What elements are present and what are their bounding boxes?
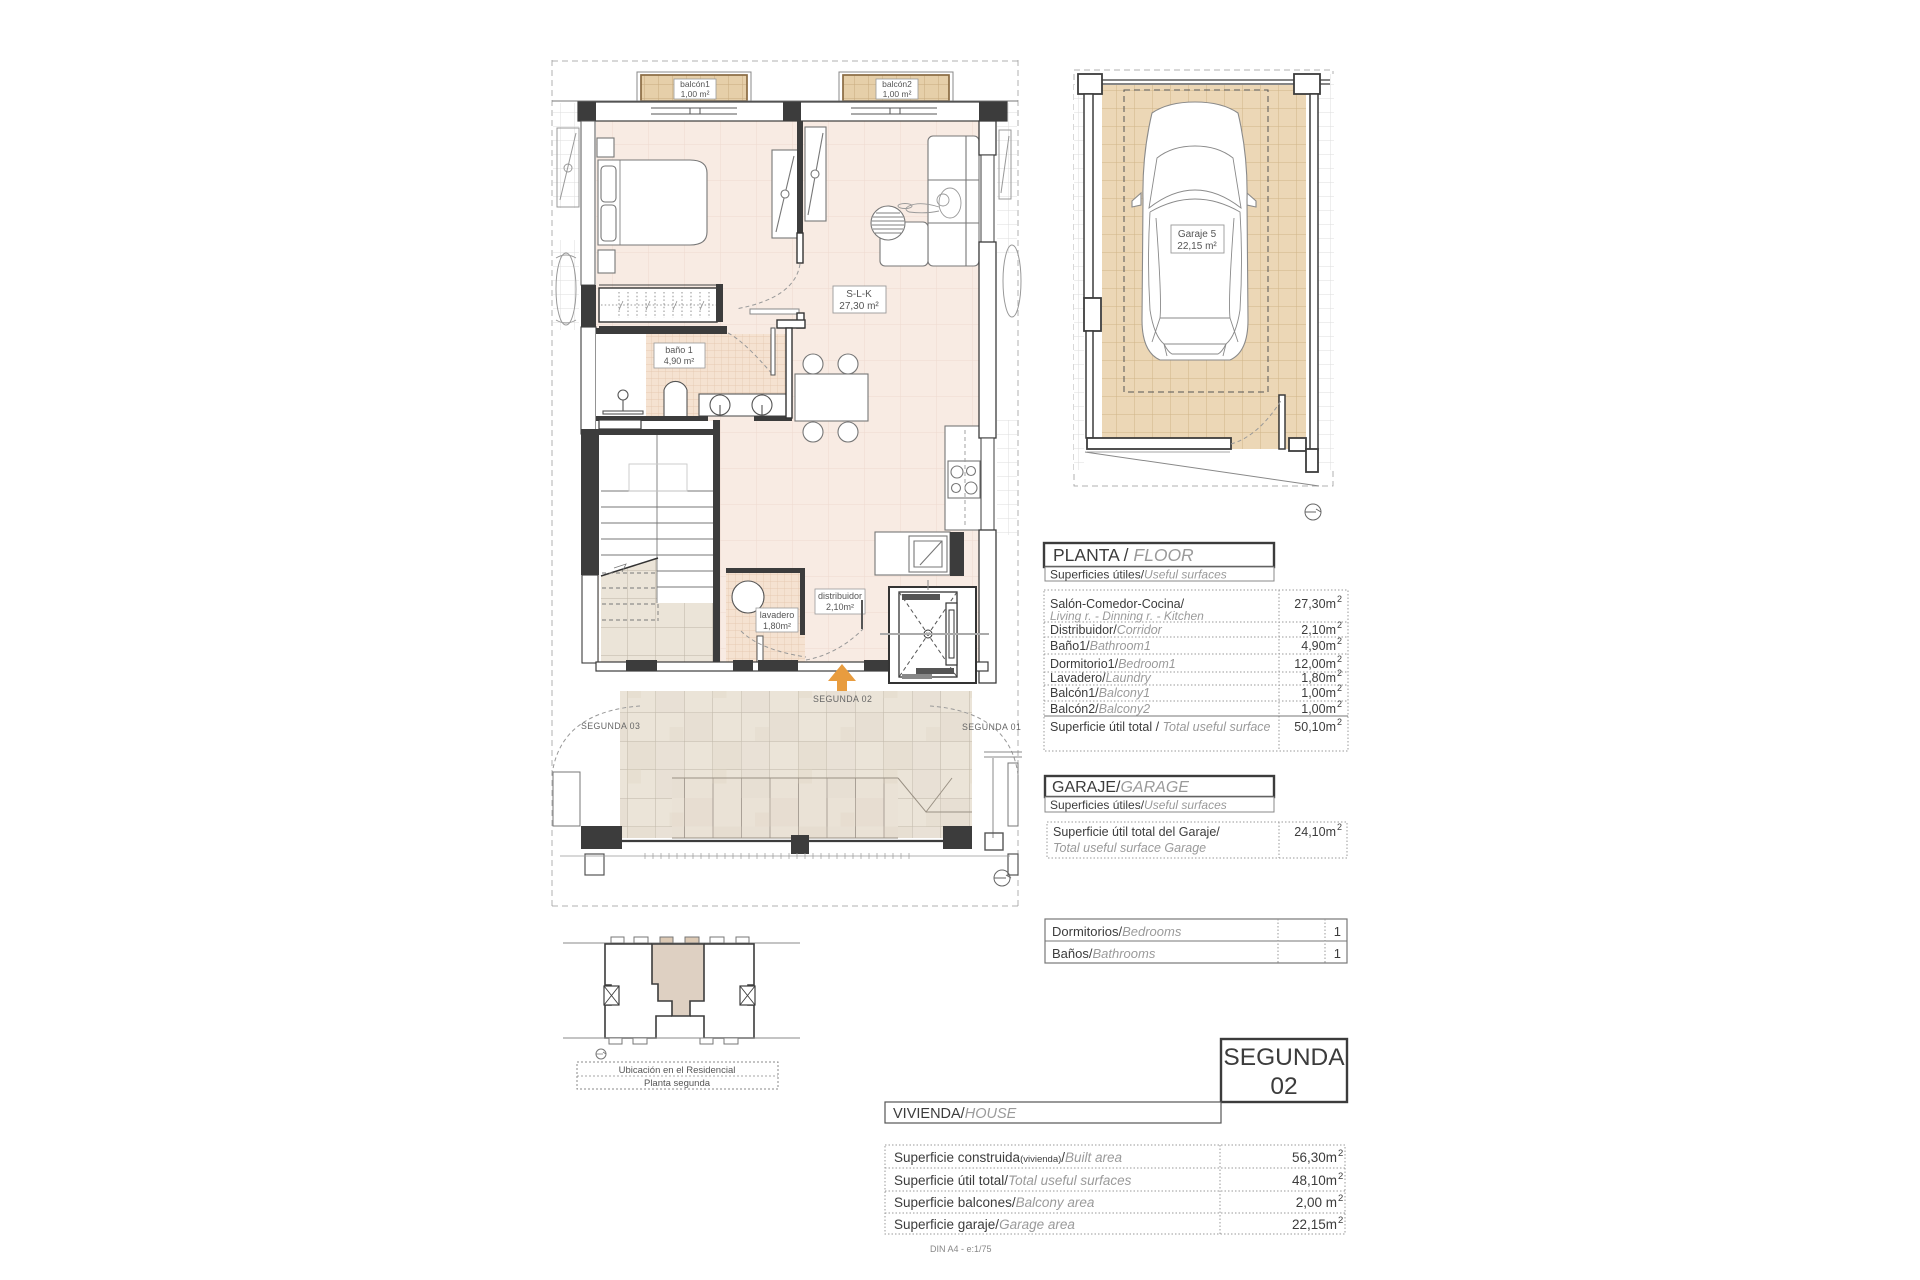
svg-text:1,00 m²: 1,00 m² (883, 89, 912, 99)
svg-text:1,80m: 1,80m (1301, 671, 1336, 685)
svg-text:2: 2 (1337, 822, 1342, 832)
svg-text:4,90m: 4,90m (1301, 639, 1336, 653)
svg-text:2: 2 (1337, 717, 1342, 727)
svg-text:2: 2 (1337, 620, 1342, 630)
svg-text:Balcón2/Balcony2: Balcón2/Balcony2 (1050, 702, 1150, 716)
svg-text:2,10m²: 2,10m² (826, 602, 854, 612)
svg-text:2: 2 (1337, 668, 1342, 678)
svg-text:1,80m²: 1,80m² (763, 621, 791, 631)
svg-text:Superficie garaje/Garage area: Superficie garaje/Garage area (894, 1217, 1075, 1232)
svg-text:GARAJE/GARAGE: GARAJE/GARAGE (1052, 779, 1189, 796)
svg-text:24,10m: 24,10m (1294, 825, 1336, 839)
svg-text:Superficie construida(vivienda: Superficie construida(vivienda)/Built ar… (894, 1150, 1123, 1165)
svg-text:SEGUNDA 02: SEGUNDA 02 (813, 694, 872, 704)
svg-text:VIVIENDA/HOUSE: VIVIENDA/HOUSE (893, 1106, 1017, 1122)
svg-text:2: 2 (1338, 1171, 1343, 1182)
svg-text:27,30m: 27,30m (1294, 597, 1336, 611)
svg-text:Superficie útil total/Total us: Superficie útil total/Total useful surfa… (894, 1173, 1132, 1188)
svg-text:50,10m: 50,10m (1294, 720, 1336, 734)
svg-text:Baño1/Bathroom1: Baño1/Bathroom1 (1050, 639, 1151, 653)
svg-text:Total useful surface Garage: Total useful surface Garage (1053, 841, 1206, 855)
svg-text:Ubicación en el Residencial: Ubicación en el Residencial (619, 1065, 736, 1076)
svg-text:Dormitorios/Bedrooms: Dormitorios/Bedrooms (1052, 924, 1182, 939)
svg-text:baño 1: baño 1 (665, 345, 693, 355)
svg-text:Dormitorio1/Bedroom1: Dormitorio1/Bedroom1 (1050, 657, 1176, 671)
svg-text:balcón2: balcón2 (882, 79, 912, 89)
svg-text:Superficie útil total / Total: Superficie útil total / Total useful sur… (1050, 720, 1271, 734)
svg-text:2: 2 (1337, 699, 1342, 709)
svg-text:Living r. - Dinning r. - Kitch: Living r. - Dinning r. - Kitchen (1050, 609, 1204, 623)
svg-text:48,10m: 48,10m (1292, 1173, 1337, 1188)
svg-text:2: 2 (1337, 683, 1342, 693)
svg-text:2: 2 (1337, 594, 1342, 604)
svg-text:2: 2 (1338, 1148, 1343, 1159)
svg-text:Balcón1/Balcony1: Balcón1/Balcony1 (1050, 686, 1150, 700)
svg-text:Lavadero/Laundry: Lavadero/Laundry (1050, 671, 1152, 685)
svg-text:SEGUNDA: SEGUNDA (1223, 1044, 1345, 1071)
svg-text:2: 2 (1337, 636, 1342, 646)
svg-text:PLANTA / FLOOR: PLANTA / FLOOR (1053, 545, 1194, 565)
svg-text:Superficie balcones/Balcony ar: Superficie balcones/Balcony area (894, 1195, 1095, 1210)
svg-text:2: 2 (1338, 1193, 1343, 1204)
svg-text:1,00 m²: 1,00 m² (681, 89, 710, 99)
svg-text:56,30m: 56,30m (1292, 1150, 1337, 1165)
svg-text:22,15m: 22,15m (1292, 1217, 1337, 1232)
svg-text:Distribuidor/Corridor: Distribuidor/Corridor (1050, 623, 1163, 637)
svg-text:2,00 m: 2,00 m (1296, 1195, 1337, 1210)
svg-text:4,90 m²: 4,90 m² (664, 356, 695, 366)
svg-text:2,10m: 2,10m (1301, 623, 1336, 637)
svg-text:balcón1: balcón1 (680, 79, 710, 89)
svg-text:distribuidor: distribuidor (818, 591, 862, 601)
svg-text:Superficies útiles/Useful surf: Superficies útiles/Useful surfaces (1050, 568, 1227, 582)
svg-text:lavadero: lavadero (760, 610, 795, 620)
svg-text:Superficie útil total del Gara: Superficie útil total del Garaje/ (1053, 825, 1220, 839)
svg-text:Baños/Bathrooms: Baños/Bathrooms (1052, 946, 1156, 961)
svg-text:22,15 m²: 22,15 m² (1177, 241, 1217, 252)
svg-text:Superficies útiles/Useful surf: Superficies útiles/Useful surfaces (1050, 798, 1227, 812)
svg-text:DIN A4 - e:1/75: DIN A4 - e:1/75 (930, 1244, 992, 1254)
svg-text:SEGUNDA 03: SEGUNDA 03 (581, 721, 640, 731)
svg-text:02: 02 (1270, 1073, 1297, 1100)
svg-text:1: 1 (1334, 924, 1341, 939)
svg-text:27,30 m²: 27,30 m² (839, 301, 879, 312)
svg-text:1,00m: 1,00m (1301, 702, 1336, 716)
svg-text:1,00m: 1,00m (1301, 686, 1336, 700)
svg-text:2: 2 (1337, 654, 1342, 664)
svg-text:SEGUNDA 01: SEGUNDA 01 (962, 722, 1021, 732)
svg-text:12,00m: 12,00m (1294, 657, 1336, 671)
svg-text:Garaje 5: Garaje 5 (1178, 229, 1217, 240)
svg-text:Planta segunda: Planta segunda (644, 1078, 711, 1089)
svg-text:1: 1 (1334, 946, 1341, 961)
svg-text:2: 2 (1338, 1215, 1343, 1226)
svg-text:S-L-K: S-L-K (846, 289, 872, 300)
